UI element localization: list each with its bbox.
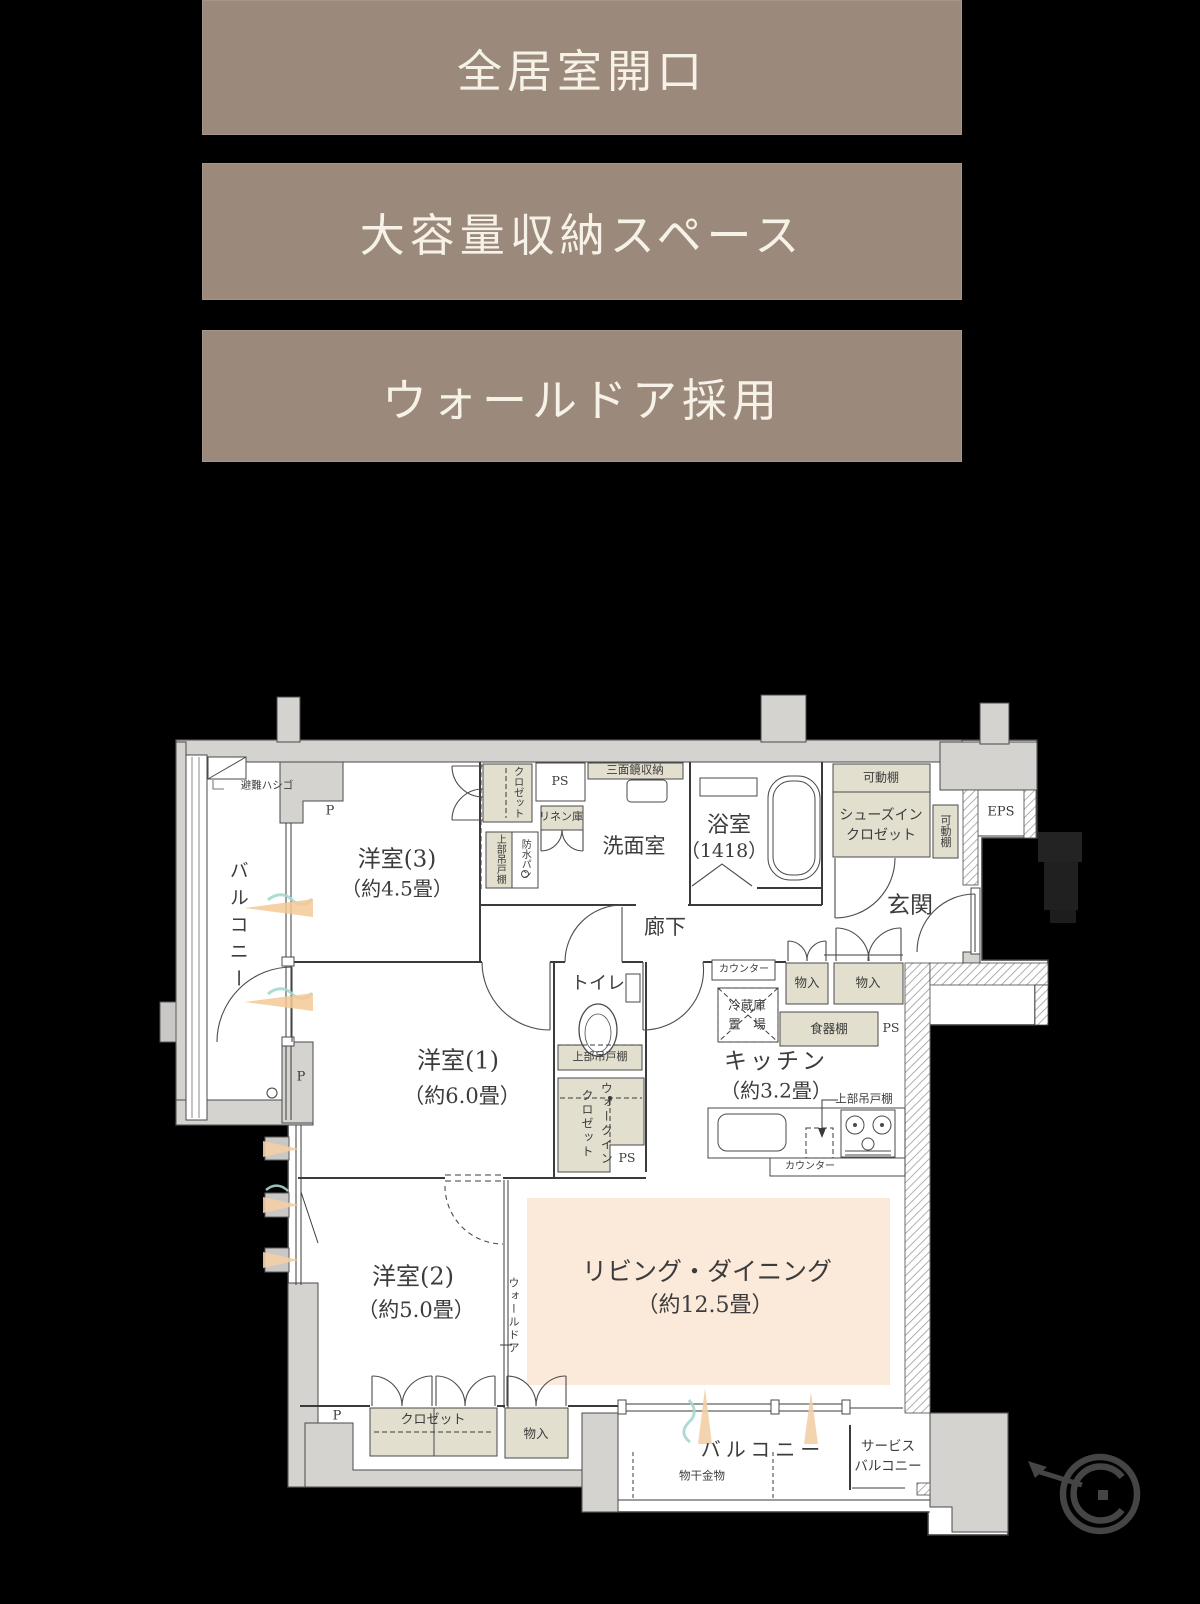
label-toilet: トイレ: [571, 971, 625, 997]
label-balcony-left: バルコニー: [223, 861, 251, 996]
label-wall-door: ウォールドア: [505, 1277, 521, 1355]
label-p-3: P: [333, 1408, 342, 1427]
label-eps: EPS: [987, 804, 1014, 823]
label-kadou-dana-top: 可動棚: [863, 769, 899, 786]
label-living-dining: リビング・ダイニング: [582, 1254, 832, 1290]
label-hinan-hashigo: 避難ハシゴ: [241, 778, 294, 793]
label-balcony-bottom: バルコニー: [701, 1436, 826, 1465]
label-kitchen-size: （約3.2畳）: [720, 1077, 832, 1106]
label-monoire-hall-1: 物入: [794, 974, 819, 992]
label-joubu-tsuridana-kitchen: 上部吊戸棚: [835, 1091, 893, 1108]
label-kitchen: キッチン: [724, 1045, 828, 1078]
floor-plan: [0, 0, 1200, 1604]
label-monoire-hall-2: 物入: [855, 974, 880, 992]
balcony-railing: [186, 755, 207, 1120]
label-yoshitsu2-size: （約5.0畳）: [357, 1295, 474, 1325]
label-bath: 浴室: [707, 810, 751, 842]
label-ps-top: PS: [552, 772, 569, 790]
label-shoes-in-closet: シューズイン クロゼット: [839, 806, 922, 847]
label-walk-in-closet: ウォークイン クロゼット: [577, 1082, 615, 1166]
label-ps-kitchen: PS: [883, 1019, 900, 1037]
label-ps-wic: PS: [619, 1149, 636, 1167]
label-closet-yoshitsu3: クロゼット: [510, 766, 525, 819]
label-living-dining-size: （約12.5畳）: [637, 1290, 774, 1322]
label-yoshitsu1: 洋室(1): [417, 1044, 499, 1079]
label-rouka: 廊下: [644, 912, 686, 942]
label-service-balcony: サービス バルコニー: [854, 1437, 921, 1476]
label-yoshitsu1-size: （約6.0畳）: [403, 1081, 520, 1111]
compass-icon: [1028, 1457, 1137, 1531]
label-p-2: P: [297, 1069, 306, 1088]
label-monoire-bottom: 物入: [523, 1425, 548, 1443]
label-genkan: 玄関: [887, 889, 933, 922]
label-fridge: 冷蔵庫 置 場: [728, 996, 766, 1035]
label-bath-size: （1418）: [681, 838, 767, 866]
label-bousui-pan: 防水パン: [517, 839, 532, 879]
entrance-porch: [1038, 832, 1082, 923]
label-shokki-dana: 食器棚: [810, 1020, 848, 1038]
label-yoshitsu2: 洋室(2): [372, 1260, 454, 1295]
label-counter-kitchen: カウンター: [785, 1160, 835, 1175]
label-kadou-dana-side: 可動棚: [937, 815, 953, 848]
label-p-1: P: [326, 803, 335, 822]
label-sanmenkyo: 三面鏡収納: [606, 762, 664, 779]
label-monohoshi: 物干金物: [679, 1468, 725, 1485]
label-joubu-tsuridana-west: 上部吊戸棚: [492, 834, 507, 884]
label-yoshitsu3: 洋室(3): [358, 843, 437, 876]
page: { "banners":[ {"label":"全居室開口"}, {"label…: [0, 0, 1200, 1604]
label-linen: リネン庫: [539, 809, 583, 825]
label-senmen: 洗面室: [603, 831, 666, 861]
label-joubu-tsuridana-toilet: 上部吊戸棚: [573, 1049, 628, 1065]
label-yoshitsu3-size: （約4.5畳）: [341, 875, 453, 904]
label-closet-bottom: クロゼット: [400, 1412, 465, 1431]
label-counter-hall: カウンター: [719, 963, 769, 978]
